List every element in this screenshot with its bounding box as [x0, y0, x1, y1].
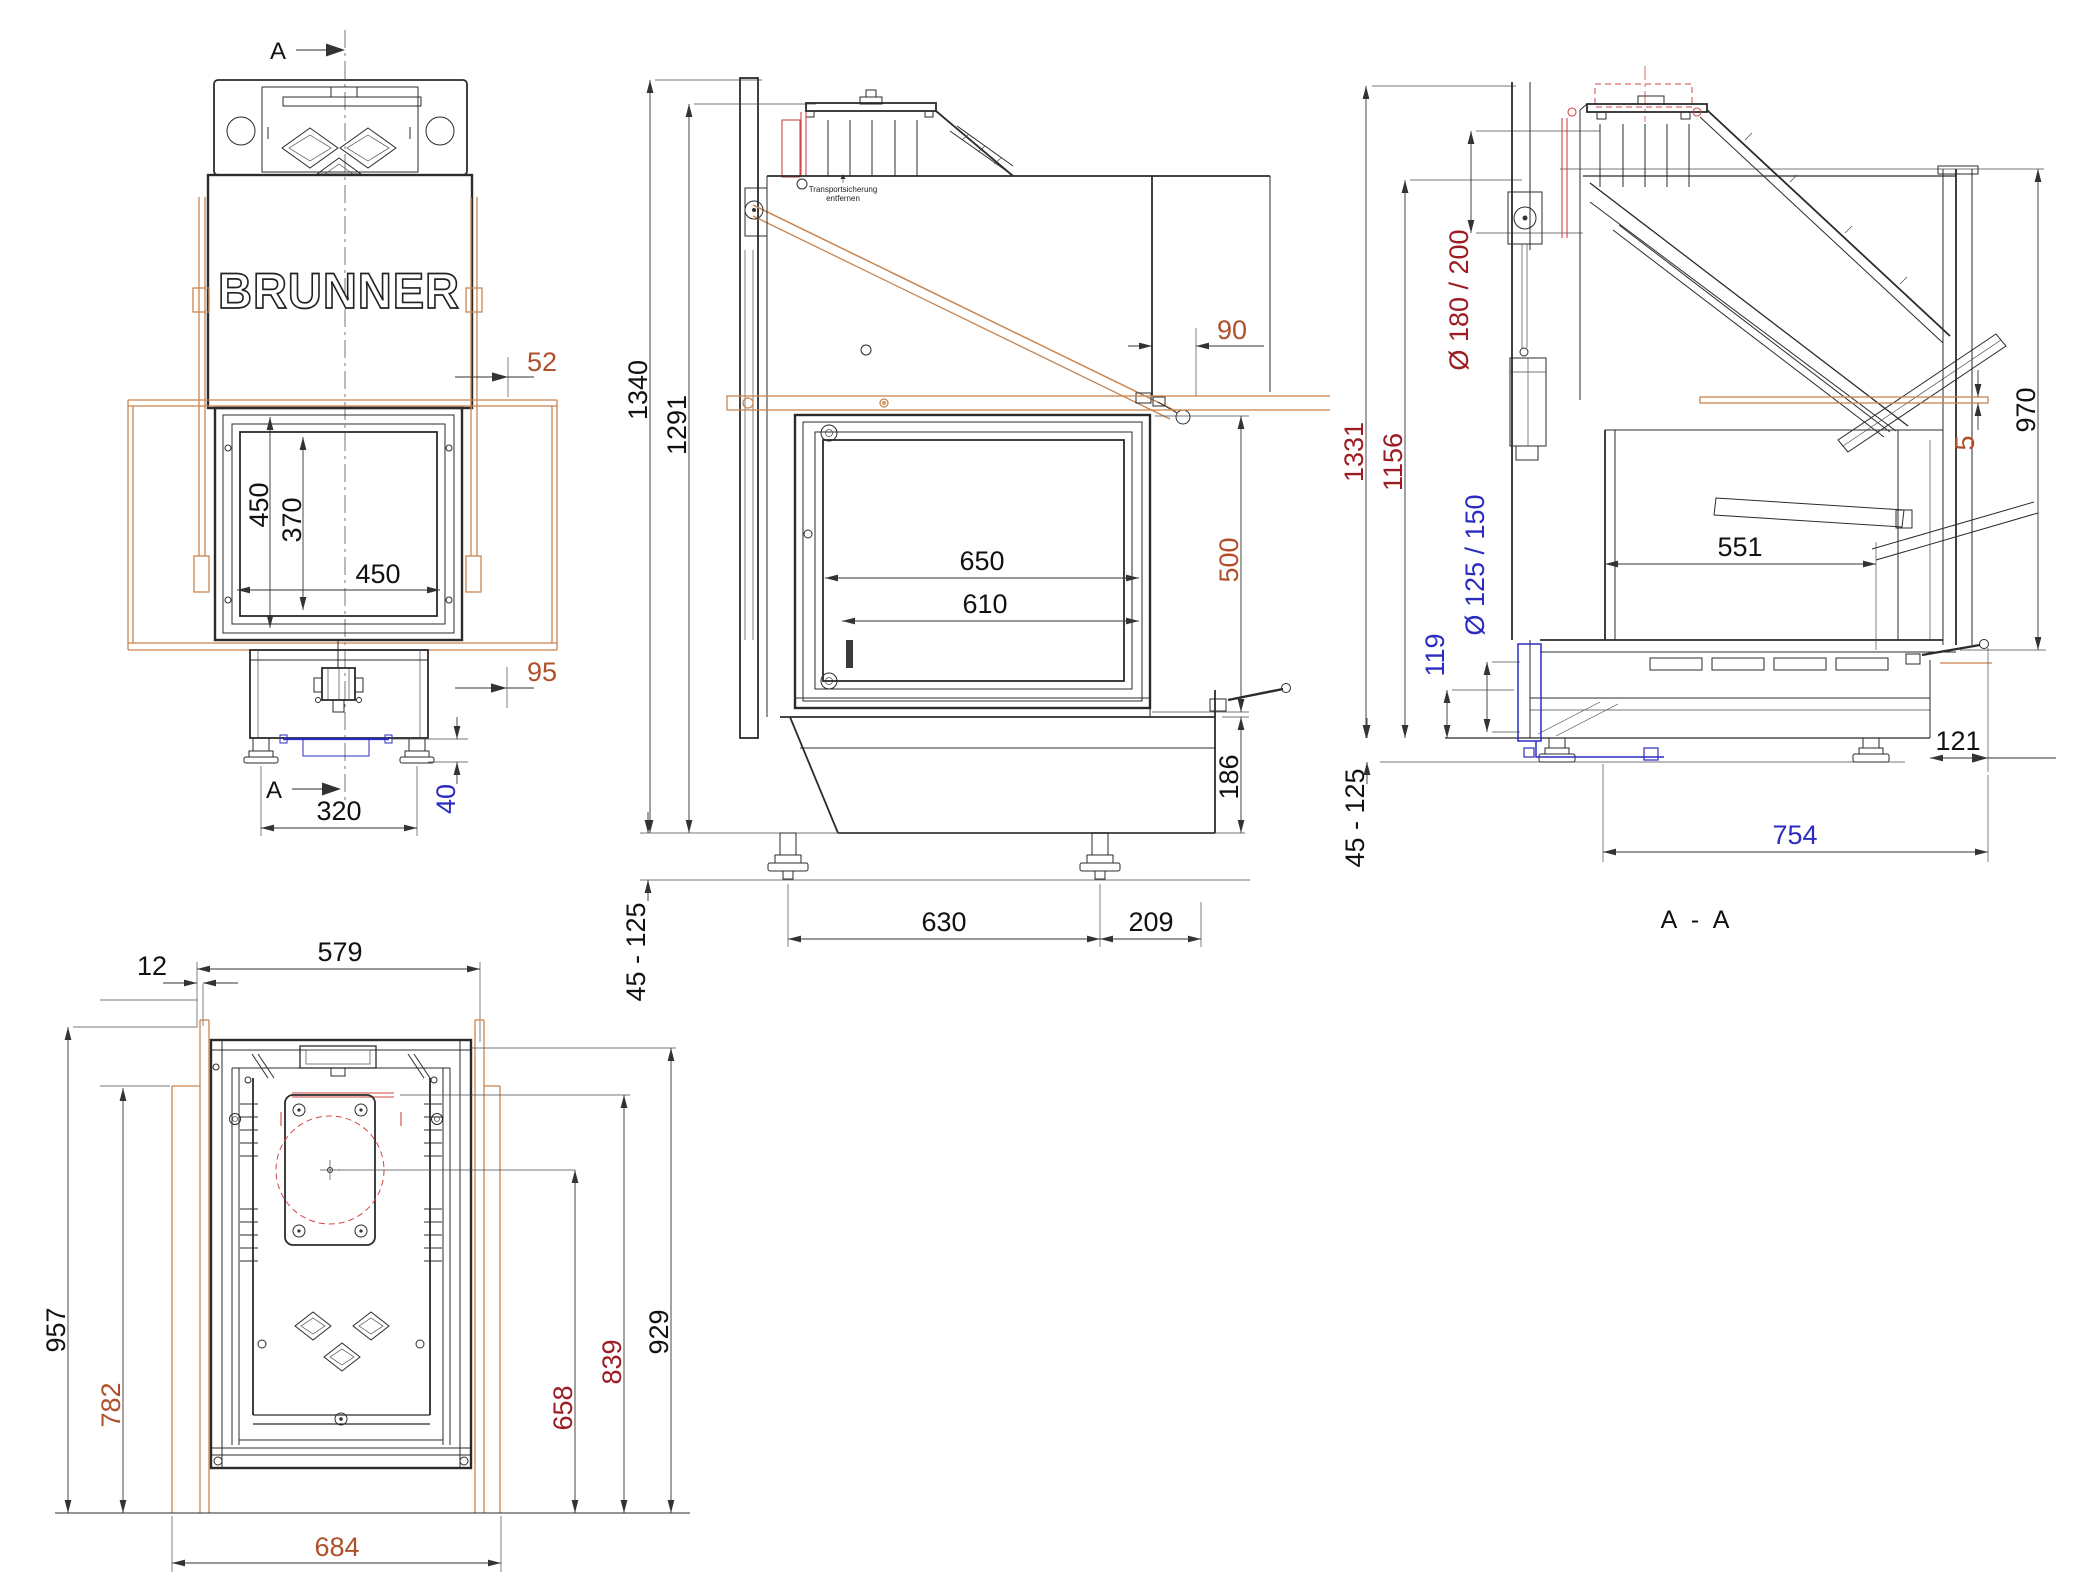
- dim-5: 5: [1950, 435, 1980, 450]
- section-feet: [1539, 738, 1889, 762]
- dim-929: 929: [644, 1309, 674, 1354]
- section-air-duct: Ø 125 / 150 119: [1420, 494, 1664, 760]
- front-pedestal: [250, 640, 428, 738]
- side-feet: [768, 833, 1120, 879]
- front-mounting-frame: [128, 400, 557, 650]
- section-letter-bottom: A: [266, 777, 282, 804]
- side-left-dimensions: 1340 1291: [623, 80, 816, 833]
- plan-top-mechanism: [213, 1046, 443, 1126]
- front-base-rail-blue: [280, 735, 392, 756]
- dim-air-diameter: Ø 125 / 150: [1460, 494, 1490, 635]
- section-front-glass: [1930, 166, 1978, 645]
- plan-diamonds: [295, 1312, 389, 1371]
- plan-view-drawing: 579 12: [40, 930, 710, 1589]
- side-base: [640, 684, 1291, 881]
- dim-450v: 450: [244, 482, 274, 527]
- section-firebox: [1445, 430, 1956, 738]
- side-dim-90: 90: [1128, 315, 1264, 396]
- dim-970: 970: [2011, 387, 2041, 432]
- dim-1340: 1340: [623, 360, 653, 420]
- dim-551: 551: [1717, 532, 1762, 562]
- dim-45-125-section: 45 - 125: [1340, 768, 1370, 867]
- dim-650: 650: [959, 546, 1004, 576]
- front-dimensions: 52 450 370 450 95 40 320: [237, 347, 557, 836]
- dim-95: 95: [527, 657, 557, 687]
- dim-610: 610: [962, 589, 1007, 619]
- dim-1156: 1156: [1378, 433, 1408, 491]
- section-dim-551: 551: [1605, 532, 1876, 650]
- front-lift-rails: [193, 197, 482, 592]
- section-bottom-dimensions: 121 754 45 - 125: [1340, 648, 2056, 868]
- dim-630: 630: [921, 907, 966, 937]
- plan-top-dimensions: 579 12: [100, 937, 480, 1042]
- section-title: A - A: [1661, 906, 1734, 934]
- side-mounting-bar: [727, 396, 1330, 410]
- section-lift-mechanism: [1508, 82, 1546, 640]
- dim-957: 957: [41, 1307, 71, 1352]
- dim-370: 370: [277, 497, 307, 542]
- front-air-box: [214, 80, 467, 175]
- dim-579: 579: [317, 937, 362, 967]
- dim-500: 500: [1214, 537, 1244, 582]
- brand-logo: BRUNNER: [218, 263, 460, 319]
- dim-121: 121: [1935, 726, 1980, 756]
- glass-logo-mark: [846, 640, 853, 668]
- dim-1291: 1291: [662, 395, 692, 455]
- side-gas-strut: [745, 188, 1190, 424]
- section-letter-top: A: [270, 38, 286, 65]
- dim-839: 839: [597, 1339, 627, 1384]
- section-top: [1560, 66, 2044, 400]
- dim-754: 754: [1772, 820, 1817, 850]
- dim-90: 90: [1217, 315, 1247, 345]
- front-feet: [244, 738, 434, 763]
- section-hood-baffles: [1590, 110, 2038, 560]
- section-title-label: A - A: [1661, 906, 1734, 934]
- dim-40: 40: [431, 784, 461, 814]
- dim-flue: Ø 180 / 200: [1444, 229, 1474, 370]
- plan-inner-walls: [232, 1068, 450, 1445]
- plan-mounting-frame: [172, 1020, 500, 1513]
- drawing-sheet: A BRUNNER: [0, 0, 2100, 1589]
- dim-1331: 1331: [1339, 422, 1369, 482]
- dim-119: 119: [1420, 633, 1450, 676]
- side-view-drawing: 1340 1291 Transportsi: [620, 0, 1330, 1020]
- dim-209: 209: [1128, 907, 1173, 937]
- section-hearth-plate: 5: [1700, 370, 1988, 451]
- dim-782: 782: [96, 1382, 126, 1427]
- dim-186: 186: [1214, 754, 1244, 799]
- front-firebox: BRUNNER: [208, 175, 472, 408]
- dim-684: 684: [314, 1532, 359, 1562]
- dim-12: 12: [137, 951, 167, 981]
- note-line2: entfernen: [826, 194, 860, 203]
- front-section-marker-top: A: [270, 38, 345, 65]
- dim-658: 658: [548, 1385, 578, 1430]
- dim-450h: 450: [355, 559, 400, 589]
- front-view-drawing: A BRUNNER: [0, 0, 620, 870]
- side-glass-dimensions: 650 610 500 186: [825, 416, 1249, 833]
- note-line1: Transportsicherung: [809, 185, 878, 194]
- dim-320: 320: [316, 796, 361, 826]
- plan-vents: [240, 1104, 442, 1261]
- dim-52: 52: [527, 347, 557, 377]
- plan-bottom: 684: [55, 1513, 690, 1572]
- section-view-drawing: 1331 1156 Ø 180 / 200: [1330, 0, 2100, 960]
- section-dim-970: 970: [1960, 169, 2046, 650]
